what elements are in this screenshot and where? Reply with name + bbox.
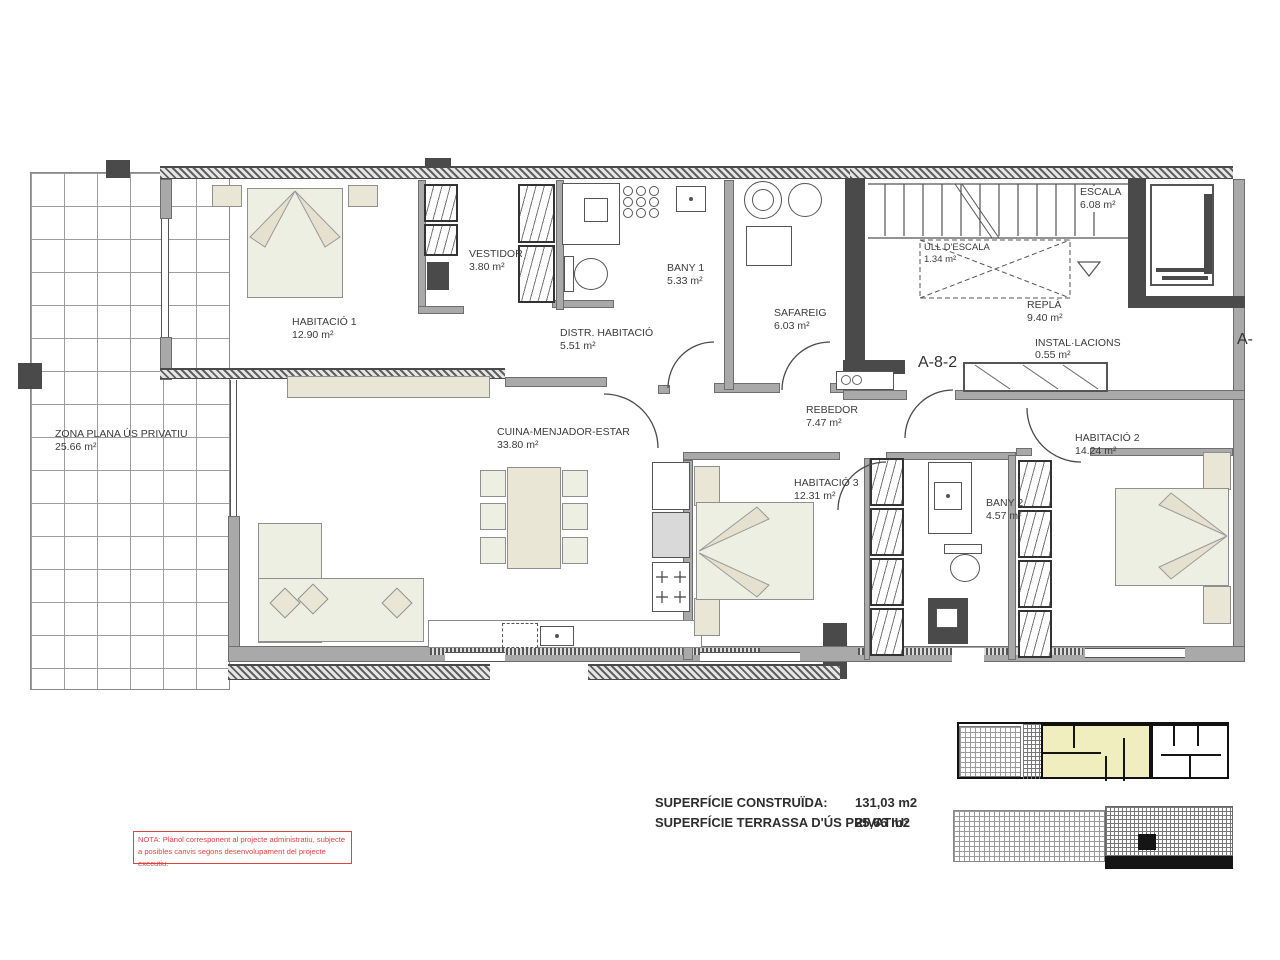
- chair: [480, 537, 506, 564]
- floor-plan-sheet: HABITACIÓ 1 12.90 m² VESTIDOR 3.80 m² BA…: [0, 0, 1280, 960]
- pillar: [18, 363, 42, 389]
- dishwasher: [502, 623, 538, 648]
- towel-rack-grid: [624, 187, 659, 218]
- elevator-door-rail: [1162, 276, 1208, 280]
- stove: [652, 562, 690, 612]
- wall-segment: [418, 306, 464, 314]
- meter-box: [836, 371, 894, 390]
- chair: [562, 537, 588, 564]
- key-plan-terrace: [959, 726, 1021, 777]
- bed: [696, 502, 814, 600]
- toilet-tank: [564, 256, 574, 292]
- room-label-habitacio-3: HABITACIÓ 3 12.31 m²: [794, 477, 859, 503]
- window: [700, 652, 800, 662]
- key-plan-hatch-strip: [1023, 724, 1041, 779]
- window: [230, 380, 237, 516]
- wall-segment: [1233, 179, 1245, 660]
- wardrobe: [870, 558, 904, 606]
- fridge: [652, 462, 690, 510]
- wall-segment: [588, 664, 840, 680]
- section-marker: A-8-2: [918, 354, 957, 372]
- window: [161, 219, 169, 337]
- room-label-bany-2: BANY 2 4.57 m²: [986, 497, 1023, 523]
- key-plan-roof: [953, 806, 1233, 870]
- chair: [562, 503, 588, 530]
- wall-segment: [1128, 179, 1146, 307]
- roof-plan-edge-band: [1105, 856, 1233, 869]
- bed: [1115, 488, 1229, 586]
- room-label-ull-escala: ULL D'ESCALA 1.34 m²: [924, 242, 990, 265]
- disclaimer-note: NOTA: Plànol corresponent al projecte ad…: [133, 831, 352, 864]
- shower-drain: [936, 608, 958, 628]
- nightstand: [212, 185, 242, 207]
- door-opening: [952, 648, 984, 662]
- wall-segment: [160, 179, 172, 219]
- terrace-area-value: 25,66 m2: [855, 815, 910, 830]
- nightstand: [694, 466, 720, 506]
- dryer: [788, 183, 822, 217]
- wardrobe: [1018, 560, 1052, 608]
- room-label-cuina-menjador: CUINA-MENJADOR-ESTAR 33.80 m²: [497, 426, 630, 452]
- cabinet-dark: [427, 262, 449, 290]
- pillar: [106, 160, 130, 178]
- washbasin: [584, 198, 608, 222]
- wardrobe: [870, 608, 904, 656]
- shower-tray: [676, 186, 706, 212]
- chair: [562, 470, 588, 497]
- laundry-cabinet: [746, 226, 792, 266]
- wardrobe: [870, 508, 904, 556]
- key-plan-highlighted-unit: [1041, 724, 1151, 779]
- room-label-repla: REPLÀ 9.40 m²: [1027, 299, 1063, 325]
- wardrobe: [1018, 610, 1052, 658]
- toilet: [574, 258, 608, 290]
- room-label-habitacio-1: HABITACIÓ 1 12.90 m²: [292, 316, 357, 342]
- room-label-installacions: INSTAL·LACIONS 0.55 m²: [1035, 338, 1121, 361]
- wall-segment: [845, 179, 865, 361]
- wall-segment: [850, 166, 1233, 179]
- washing-machine-drum: [752, 189, 774, 211]
- toilet: [950, 554, 980, 582]
- stair-direction-arrow: [1078, 262, 1100, 276]
- chair: [480, 470, 506, 497]
- wall-segment: [1016, 448, 1032, 456]
- wardrobe: [870, 458, 904, 506]
- room-label-bany-1: BANY 1 5.33 m²: [667, 262, 704, 288]
- nightstand: [694, 598, 720, 636]
- wardrobe: [424, 184, 458, 222]
- dining-table: [507, 467, 561, 569]
- oven-column: [652, 512, 690, 558]
- key-plan-floor: [957, 722, 1229, 779]
- sideboard: [287, 376, 490, 398]
- edge-section-marker: A-: [1237, 331, 1280, 349]
- nightstand: [1203, 586, 1231, 624]
- wall-segment: [505, 377, 607, 387]
- elevator-mechanism: [1204, 194, 1212, 274]
- wall-segment: [724, 180, 734, 390]
- wall-segment: [1008, 455, 1016, 660]
- wall-segment: [683, 452, 840, 460]
- wall-segment: [843, 390, 907, 400]
- wall-segment: [1128, 296, 1245, 308]
- built-area-value: 131,03 m2: [855, 795, 917, 810]
- window: [1085, 648, 1185, 658]
- wardrobe: [518, 245, 555, 303]
- washbasin: [934, 482, 962, 510]
- elevator-door-rail: [1156, 268, 1208, 272]
- roof-plan-left: [953, 810, 1105, 862]
- window: [445, 652, 505, 662]
- nightstand: [1203, 452, 1231, 490]
- room-label-rebedor: REBEDOR 7.47 m²: [806, 404, 858, 430]
- roof-plan-shaft: [1138, 834, 1156, 850]
- room-label-safareig: SAFAREIG 6.03 m²: [774, 307, 827, 333]
- installations-cabinet: [963, 362, 1108, 392]
- wall-segment: [886, 452, 1016, 460]
- room-label-zona-plana: ZONA PLANA ÚS PRIVATIU 25.66 m²: [55, 428, 188, 454]
- wardrobe: [424, 224, 458, 256]
- wall-segment: [658, 385, 670, 394]
- toilet-tank: [944, 544, 982, 554]
- bed: [247, 188, 343, 298]
- room-label-distribuidor: DISTR. HABITACIÓ 5.51 m²: [560, 327, 653, 353]
- room-label-escala: ESCALA 6.08 m²: [1078, 186, 1123, 212]
- nightstand: [348, 185, 378, 207]
- room-label-habitacio-2: HABITACIÓ 2 14.24 m²: [1075, 432, 1140, 458]
- wall-segment: [228, 516, 240, 662]
- key-plan-adjacent-unit: [1151, 724, 1229, 779]
- chair: [480, 503, 506, 530]
- room-label-vestidor: VESTIDOR 3.80 m²: [469, 248, 523, 274]
- wall-segment: [228, 664, 490, 680]
- wall-segment: [160, 166, 850, 179]
- kitchen-sink: [540, 626, 574, 646]
- built-area-label: SUPERFÍCIE CONSTRUÏDA:: [655, 795, 828, 810]
- wardrobe: [518, 184, 555, 243]
